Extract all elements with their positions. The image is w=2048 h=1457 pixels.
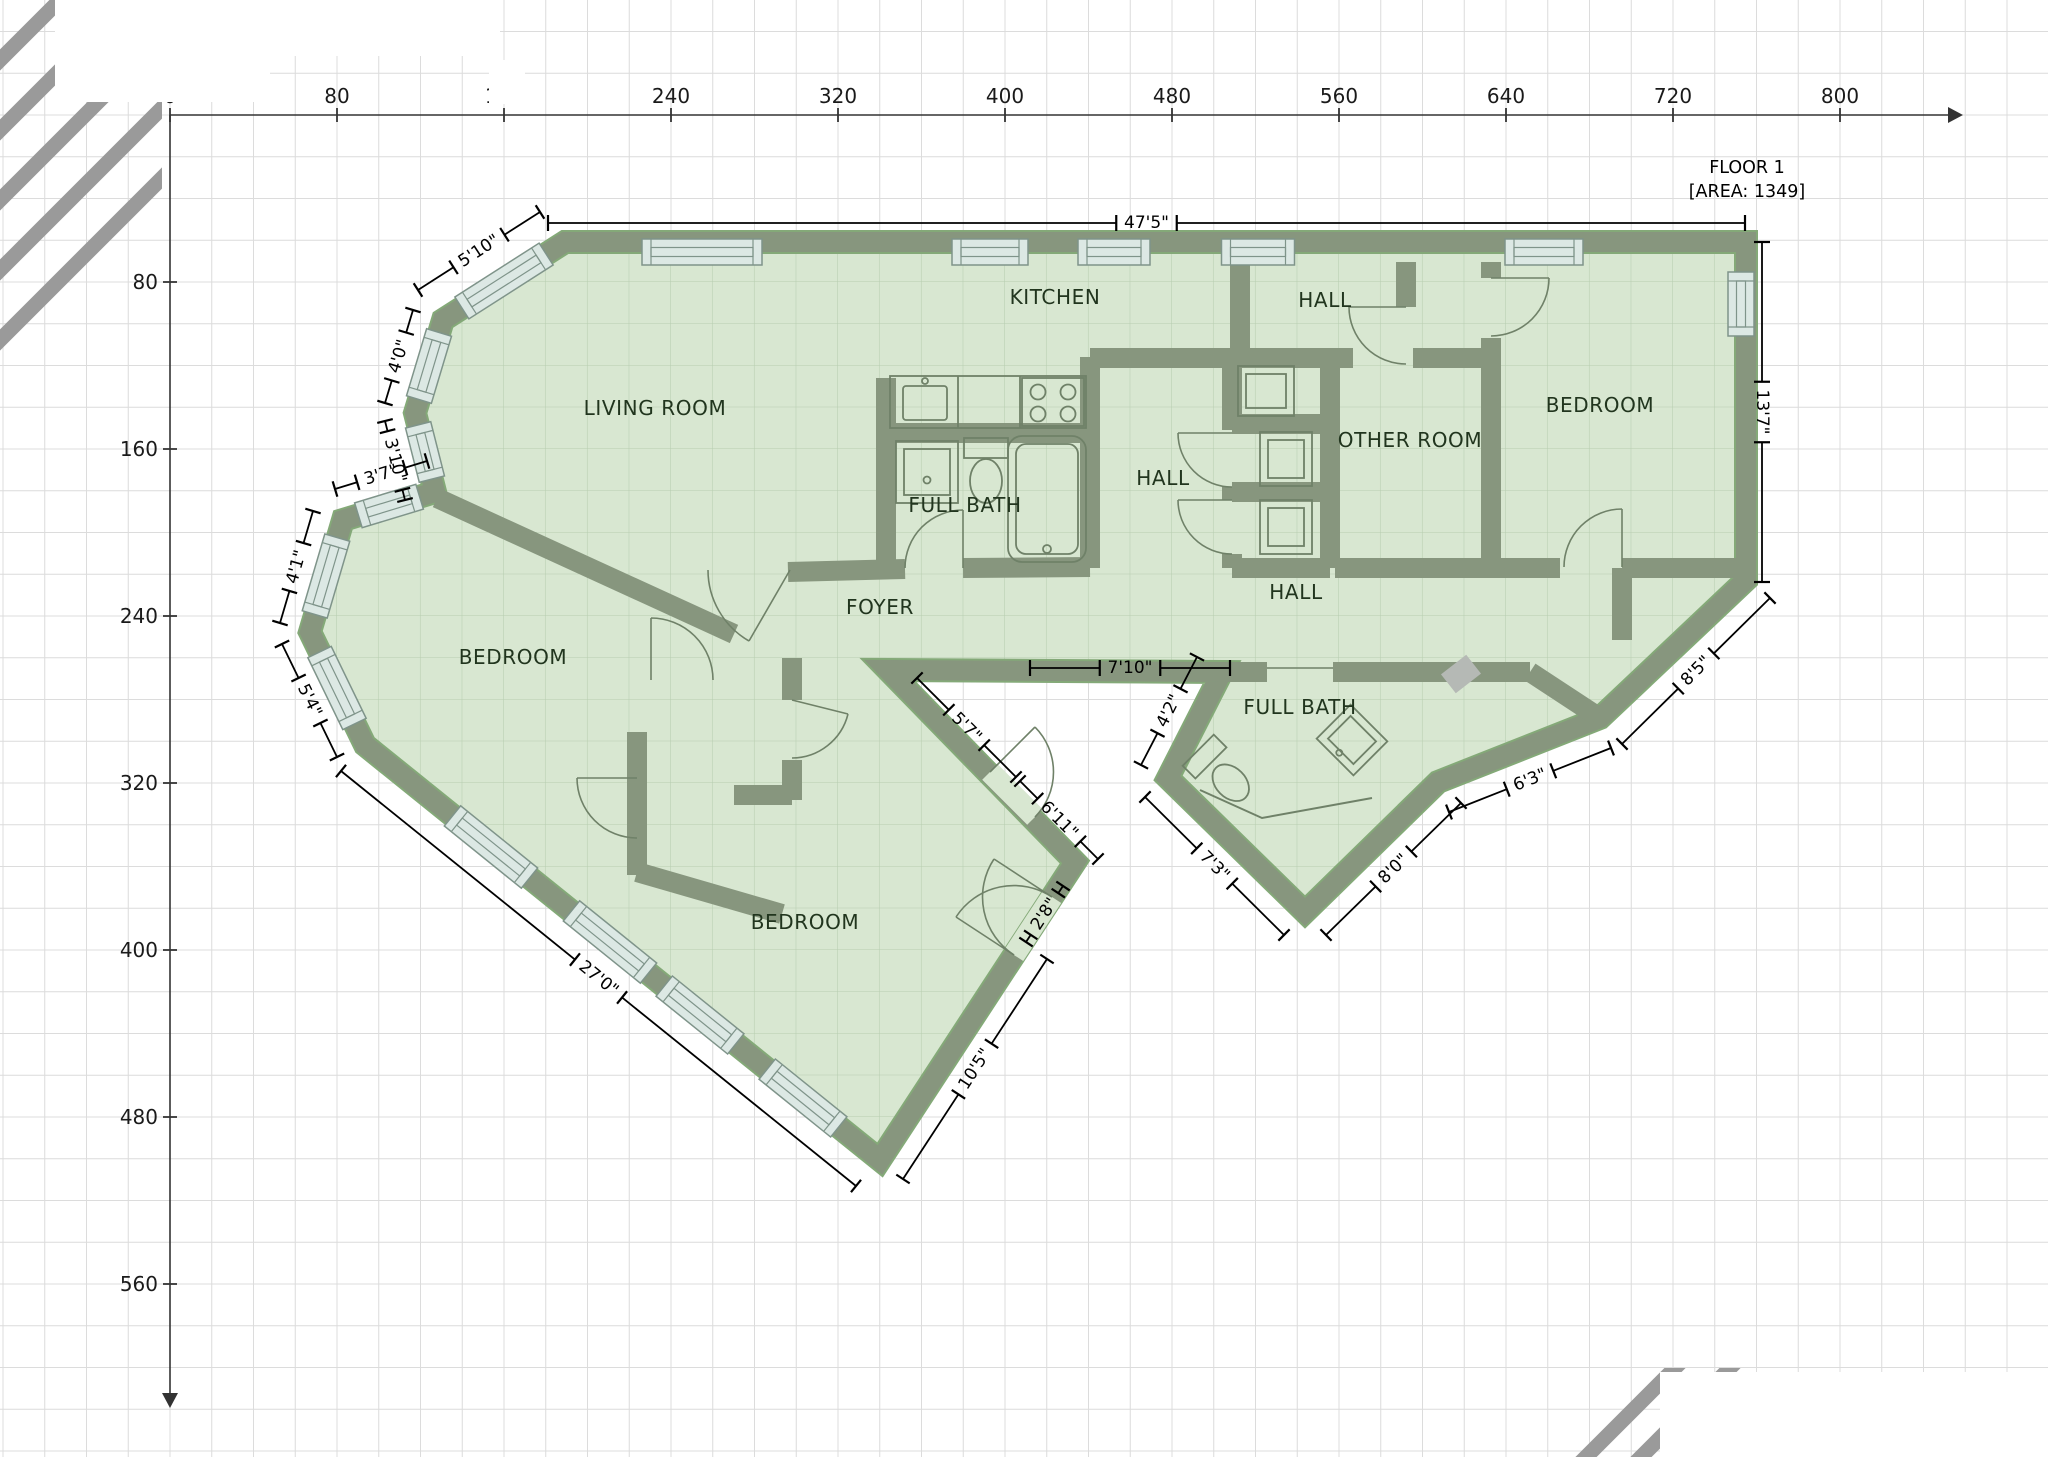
ruler-left-label-320: 320 (120, 771, 158, 795)
ruler-top-label-400: 400 (986, 84, 1024, 108)
room-label-hall-5: HALL (1136, 466, 1190, 490)
room-label-hall-7: HALL (1269, 580, 1323, 604)
room-label-full-bath-11: FULL BATH (1243, 695, 1356, 719)
building-footprint (310, 242, 1746, 1160)
room-label-bedroom-3: BEDROOM (1546, 393, 1655, 417)
ruler-top-label-560: 560 (1320, 84, 1358, 108)
window-icon (952, 239, 1028, 265)
dimension-label: 3'7" (362, 460, 400, 489)
ruler-top-label-720: 720 (1654, 84, 1692, 108)
dimension-label: 4'0" (384, 337, 413, 375)
dimension-label: 8'0" (1374, 850, 1412, 888)
floor-title: FLOOR 1 [AREA: 1349] (1689, 158, 1806, 202)
window-icon (1222, 239, 1295, 265)
dimension-label: 47'5" (1124, 213, 1169, 233)
ruler-left-label-160: 160 (120, 437, 158, 461)
ruler-top-label-320: 320 (819, 84, 857, 108)
ruler-top-label-240: 240 (652, 84, 690, 108)
ruler-left-label-400: 400 (120, 938, 158, 962)
floor-title-line2: [AREA: 1349] (1689, 182, 1806, 202)
dimension-label: 4'1" (282, 548, 311, 586)
room-label-bedroom-9: BEDROOM (459, 645, 568, 669)
dimension-label: 7'10" (1108, 658, 1153, 678)
background-grid (0, 0, 2048, 1457)
room-label-kitchen-1: KITCHEN (1010, 285, 1101, 309)
dimension-label: 4'2" (1152, 691, 1185, 730)
floor-title-line1: FLOOR 1 (1709, 158, 1785, 178)
ruler-top-label-80: 80 (324, 84, 349, 108)
room-label-other-room-4: OTHER ROOM (1338, 428, 1483, 452)
window-icon (1505, 239, 1583, 265)
dimension-label: 6'3" (1510, 764, 1549, 795)
window-icon (1728, 272, 1754, 336)
dimension-label: 5'4" (293, 681, 326, 720)
ruler-top-label-480: 480 (1153, 84, 1191, 108)
ruler-left-label-80: 80 (133, 270, 158, 294)
ruler-top-label-640: 640 (1487, 84, 1525, 108)
room-label-bedroom-10: BEDROOM (751, 910, 860, 934)
dimension-label: 13'7" (1752, 390, 1772, 435)
room-label-foyer-8: FOYER (846, 595, 914, 619)
ruler-top-label-800: 800 (1821, 84, 1859, 108)
window-icon (642, 239, 762, 265)
room-label-full-bath-6: FULL BATH (908, 493, 1021, 517)
room-label-living-room-0: LIVING ROOM (584, 396, 727, 420)
ruler-left-label-240: 240 (120, 604, 158, 628)
floorplan-svg: 0801602403204004805606407208008016024032… (0, 0, 2048, 1457)
room-label-hall-2: HALL (1298, 288, 1352, 312)
floorplan-canvas: 0801602403204004805606407208008016024032… (0, 0, 2048, 1457)
ruler-left-label-560: 560 (120, 1272, 158, 1296)
ruler-left-label-480: 480 (120, 1105, 158, 1129)
room-grid-overlay (310, 242, 1746, 1160)
window-icon (1078, 239, 1150, 265)
